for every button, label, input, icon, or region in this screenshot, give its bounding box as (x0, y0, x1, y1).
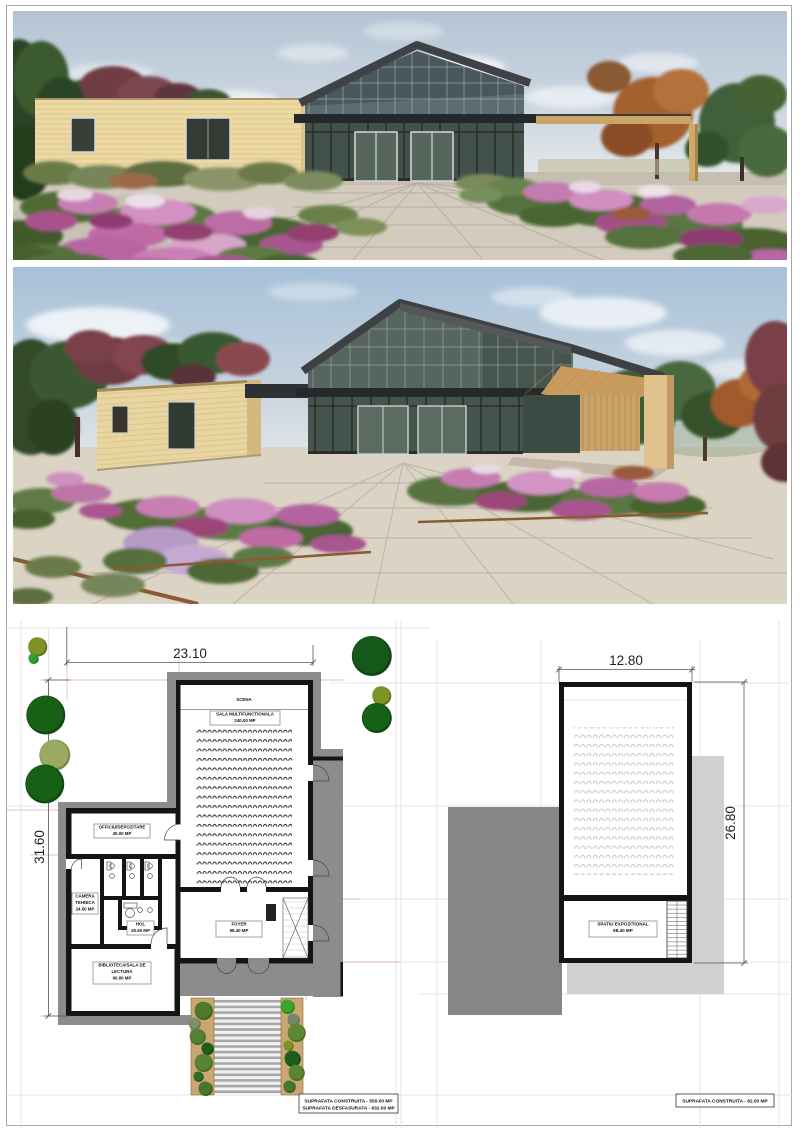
svg-text:24.50 MP: 24.50 MP (76, 906, 95, 911)
svg-text:BIBLIOTECA/SALA DE: BIBLIOTECA/SALA DE (98, 963, 145, 968)
svg-text:25.50 MP: 25.50 MP (131, 928, 150, 933)
svg-text:FOYER: FOYER (231, 922, 247, 927)
svg-text:HOL: HOL (136, 922, 146, 927)
svg-text:68.40 MP: 68.40 MP (230, 928, 249, 933)
svg-text:SALA MULTIFUNCTIONALA: SALA MULTIFUNCTIONALA (216, 712, 275, 717)
svg-text:SUPRAFATA DESFASURATA - 632.00: SUPRAFATA DESFASURATA - 632.00 MP (302, 1106, 395, 1112)
svg-text:31.60: 31.60 (32, 830, 47, 864)
svg-text:12.80: 12.80 (609, 653, 643, 668)
svg-text:SPATIU EXPOZITIONAL: SPATIU EXPOZITIONAL (597, 922, 649, 927)
svg-text:SUPRAFATA CONSTRUITA - 82.00 M: SUPRAFATA CONSTRUITA - 82.00 MP (682, 1099, 768, 1105)
svg-text:240.00 MP: 240.00 MP (234, 718, 255, 723)
svg-text:40.00 MP: 40.00 MP (113, 831, 132, 836)
svg-text:CAMERA: CAMERA (75, 894, 95, 899)
svg-text:68.40 MP: 68.40 MP (613, 928, 633, 933)
svg-text:OFFICIU/DEPOZITARE: OFFICIU/DEPOZITARE (99, 825, 146, 830)
svg-text:SCENA: SCENA (236, 697, 252, 702)
svg-text:TEHNICA: TEHNICA (75, 900, 95, 905)
svg-text:SUPRAFATA CONSTRUITA - 550.00: SUPRAFATA CONSTRUITA - 550.00 MP (304, 1099, 393, 1105)
svg-text:26.80: 26.80 (723, 806, 738, 840)
svg-text:60.00 MP: 60.00 MP (113, 975, 132, 980)
svg-text:23.10: 23.10 (173, 646, 207, 661)
svg-text:LECTURA: LECTURA (112, 969, 134, 974)
